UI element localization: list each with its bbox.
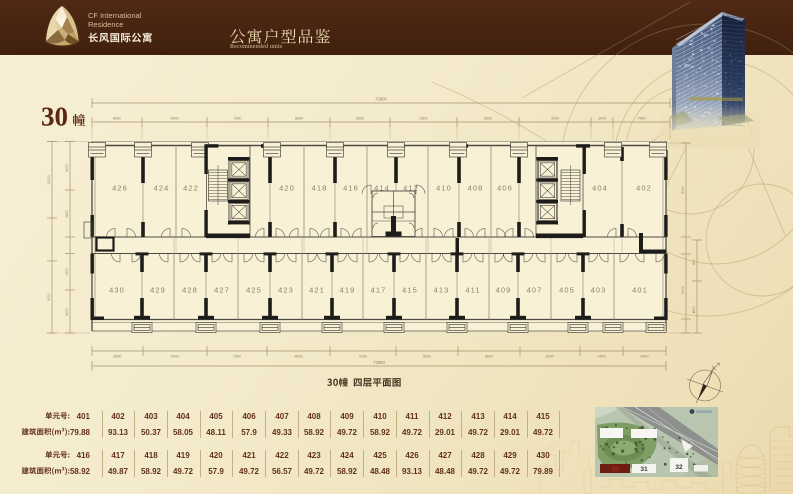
svg-text:401: 401 — [632, 286, 648, 295]
svg-text:428: 428 — [182, 286, 198, 295]
svg-text:424: 424 — [154, 184, 170, 193]
svg-text:9900: 9900 — [551, 117, 559, 121]
svg-text:8600: 8600 — [484, 117, 492, 121]
svg-text:405: 405 — [559, 286, 575, 295]
svg-text:416: 416 — [343, 184, 359, 193]
svg-text:9000: 9000 — [171, 117, 179, 121]
svg-text:422: 422 — [183, 184, 199, 193]
svg-text:2800: 2800 — [65, 210, 69, 218]
svg-text:31: 31 — [640, 466, 648, 473]
svg-text:7800: 7800 — [638, 117, 646, 121]
svg-text:4800: 4800 — [641, 355, 649, 359]
svg-text:419: 419 — [340, 286, 356, 295]
svg-text:404: 404 — [592, 184, 608, 193]
svg-text:6000: 6000 — [65, 308, 69, 316]
svg-text:30: 30 — [611, 466, 619, 473]
svg-text:73800: 73800 — [375, 97, 387, 102]
svg-text:411: 411 — [465, 286, 480, 295]
svg-text:421: 421 — [309, 286, 325, 295]
svg-text:12000: 12000 — [47, 175, 51, 185]
svg-text:410: 410 — [436, 184, 452, 193]
svg-text:7500: 7500 — [233, 355, 241, 359]
svg-text:4800: 4800 — [692, 306, 696, 314]
svg-text:8600: 8600 — [356, 117, 364, 121]
svg-text:6000: 6000 — [65, 164, 69, 172]
svg-text:8600: 8600 — [423, 355, 431, 359]
svg-text:427: 427 — [214, 286, 230, 295]
svg-text:406: 406 — [497, 184, 513, 193]
svg-text:8600: 8600 — [114, 355, 122, 359]
svg-text:426: 426 — [112, 184, 128, 193]
svg-text:9000: 9000 — [681, 186, 685, 194]
svg-text:417: 417 — [371, 286, 387, 295]
svg-text:32: 32 — [675, 464, 683, 471]
svg-text:423: 423 — [278, 286, 294, 295]
svg-text:420: 420 — [279, 184, 295, 193]
svg-text:600: 600 — [692, 259, 696, 265]
svg-text:6000: 6000 — [681, 286, 685, 294]
svg-text:409: 409 — [496, 286, 512, 295]
svg-text:9000: 9000 — [47, 293, 51, 301]
svg-text:413: 413 — [434, 286, 450, 295]
svg-text:73800: 73800 — [373, 360, 385, 365]
svg-text:8600: 8600 — [295, 117, 303, 121]
svg-text:1500: 1500 — [65, 268, 69, 276]
svg-text:425: 425 — [246, 286, 262, 295]
svg-text:407: 407 — [527, 286, 543, 295]
svg-text:8600: 8600 — [113, 117, 121, 121]
svg-text:430: 430 — [109, 286, 125, 295]
svg-text:7500: 7500 — [234, 117, 242, 121]
svg-text:3000: 3000 — [598, 117, 606, 121]
svg-text:418: 418 — [312, 184, 328, 193]
svg-text:403: 403 — [591, 286, 607, 295]
svg-text:402: 402 — [636, 184, 652, 193]
svg-text:8300: 8300 — [546, 355, 554, 359]
svg-text:9300: 9300 — [420, 117, 428, 121]
svg-text:412: 412 — [403, 184, 419, 193]
svg-text:429: 429 — [150, 286, 166, 295]
svg-text:9300: 9300 — [359, 355, 367, 359]
svg-text:4400: 4400 — [598, 355, 606, 359]
svg-text:415: 415 — [402, 286, 418, 295]
svg-text:8600: 8600 — [485, 355, 493, 359]
svg-text:414: 414 — [374, 184, 390, 193]
svg-text:9000: 9000 — [171, 355, 179, 359]
svg-text:N: N — [717, 362, 720, 367]
svg-text:408: 408 — [468, 184, 484, 193]
svg-text:8600: 8600 — [295, 355, 303, 359]
